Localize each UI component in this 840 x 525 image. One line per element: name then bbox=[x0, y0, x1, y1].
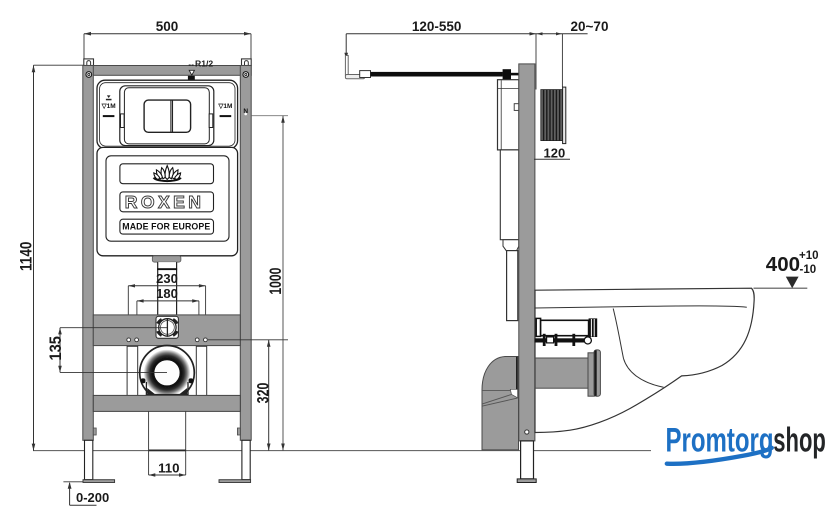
svg-text:230: 230 bbox=[156, 271, 178, 286]
svg-text:110: 110 bbox=[158, 461, 179, 476]
svg-text:1000: 1000 bbox=[267, 268, 285, 295]
svg-text:MADE FOR EUROPE: MADE FOR EUROPE bbox=[122, 222, 210, 232]
svg-text:320: 320 bbox=[255, 383, 273, 404]
svg-text:400: 400 bbox=[766, 253, 800, 276]
svg-text:1140: 1140 bbox=[17, 242, 36, 271]
svg-text:0-200: 0-200 bbox=[76, 490, 109, 505]
svg-text:R1/2: R1/2 bbox=[195, 58, 213, 68]
svg-text:120-550: 120-550 bbox=[412, 19, 462, 34]
svg-text:120: 120 bbox=[544, 146, 566, 161]
svg-text:20~70: 20~70 bbox=[571, 19, 609, 34]
svg-text:▽1M: ▽1M bbox=[217, 103, 232, 110]
svg-text:-10: -10 bbox=[800, 264, 817, 276]
svg-text:ROXEN: ROXEN bbox=[125, 192, 205, 212]
svg-text:135: 135 bbox=[47, 336, 65, 361]
svg-text:shop: shop bbox=[773, 421, 826, 459]
svg-text:+10: +10 bbox=[799, 250, 819, 262]
svg-text:500: 500 bbox=[156, 19, 179, 34]
svg-text:180: 180 bbox=[156, 286, 178, 301]
svg-text:▽1M: ▽1M bbox=[101, 103, 116, 110]
